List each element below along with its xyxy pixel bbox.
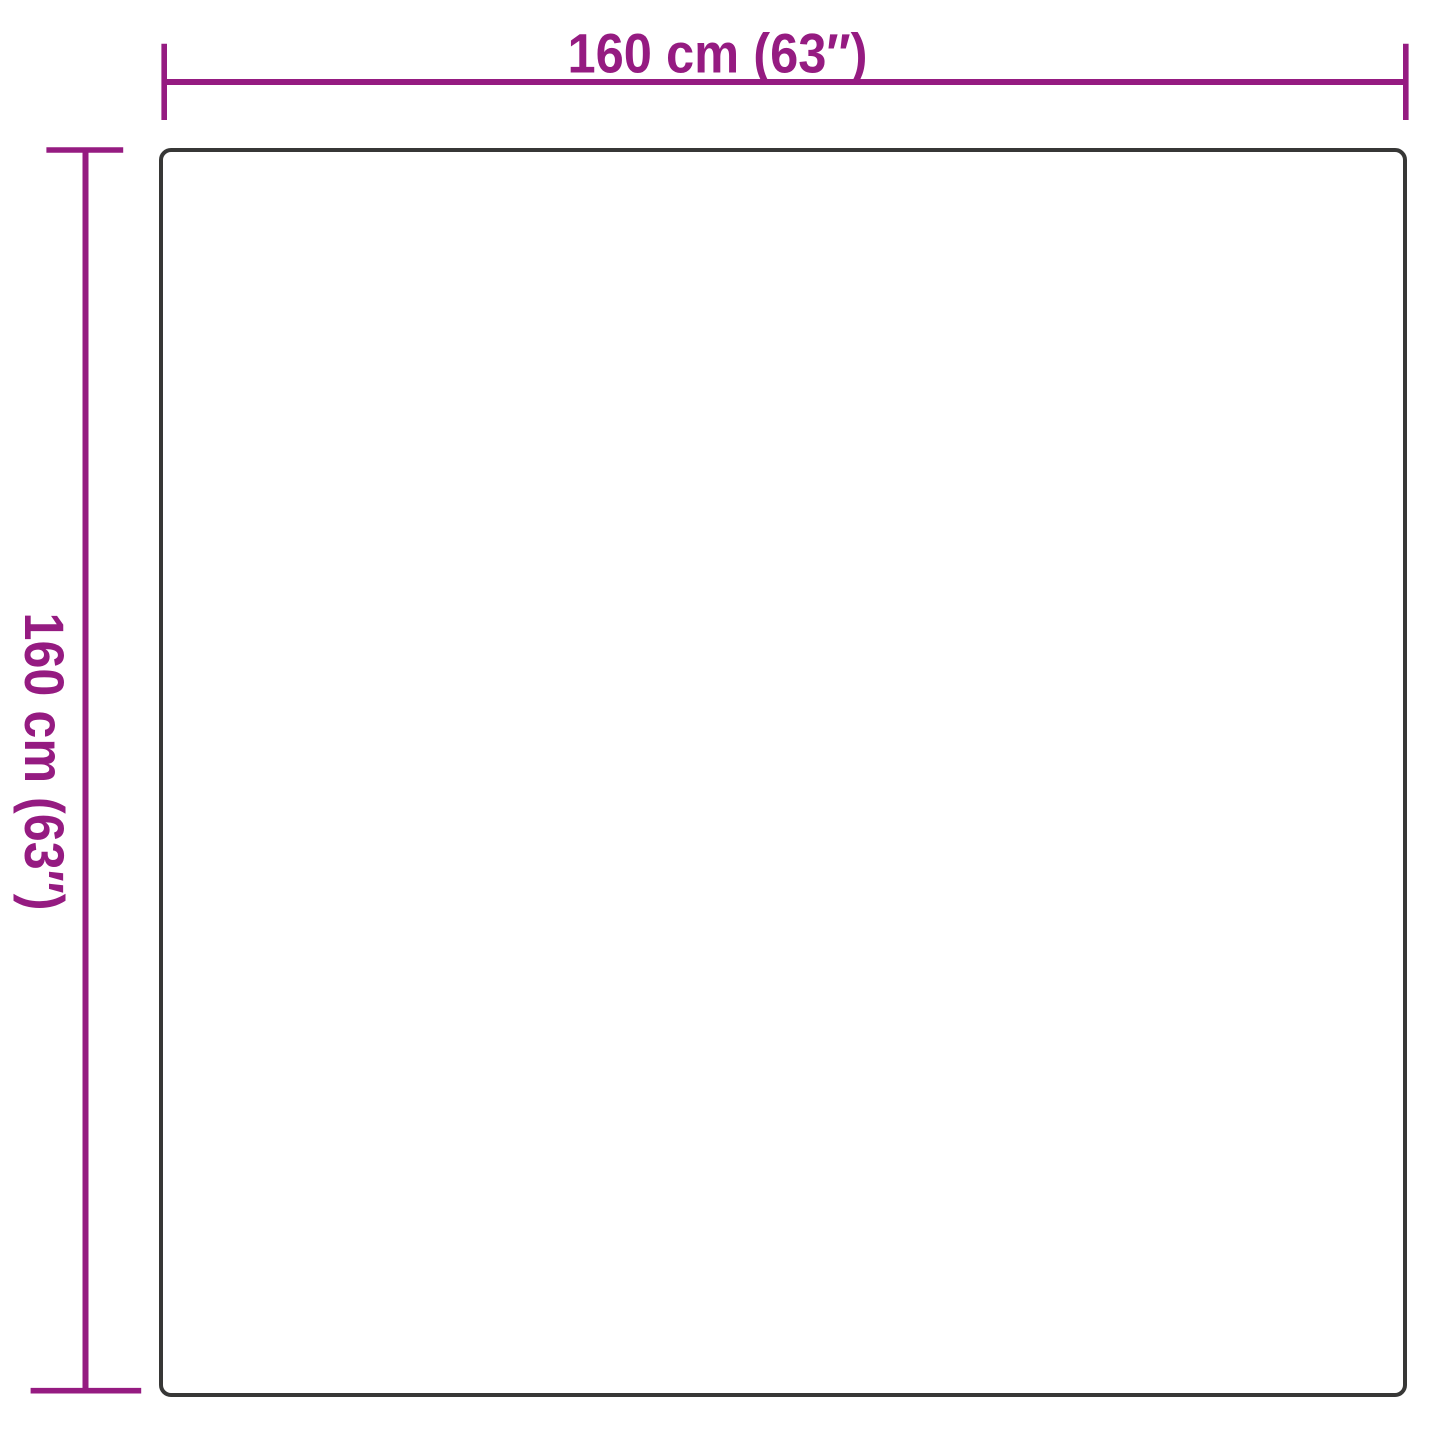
svg-text:160 cm (63″): 160 cm (63″) xyxy=(568,22,868,85)
svg-text:160 cm (63″): 160 cm (63″) xyxy=(13,613,76,911)
